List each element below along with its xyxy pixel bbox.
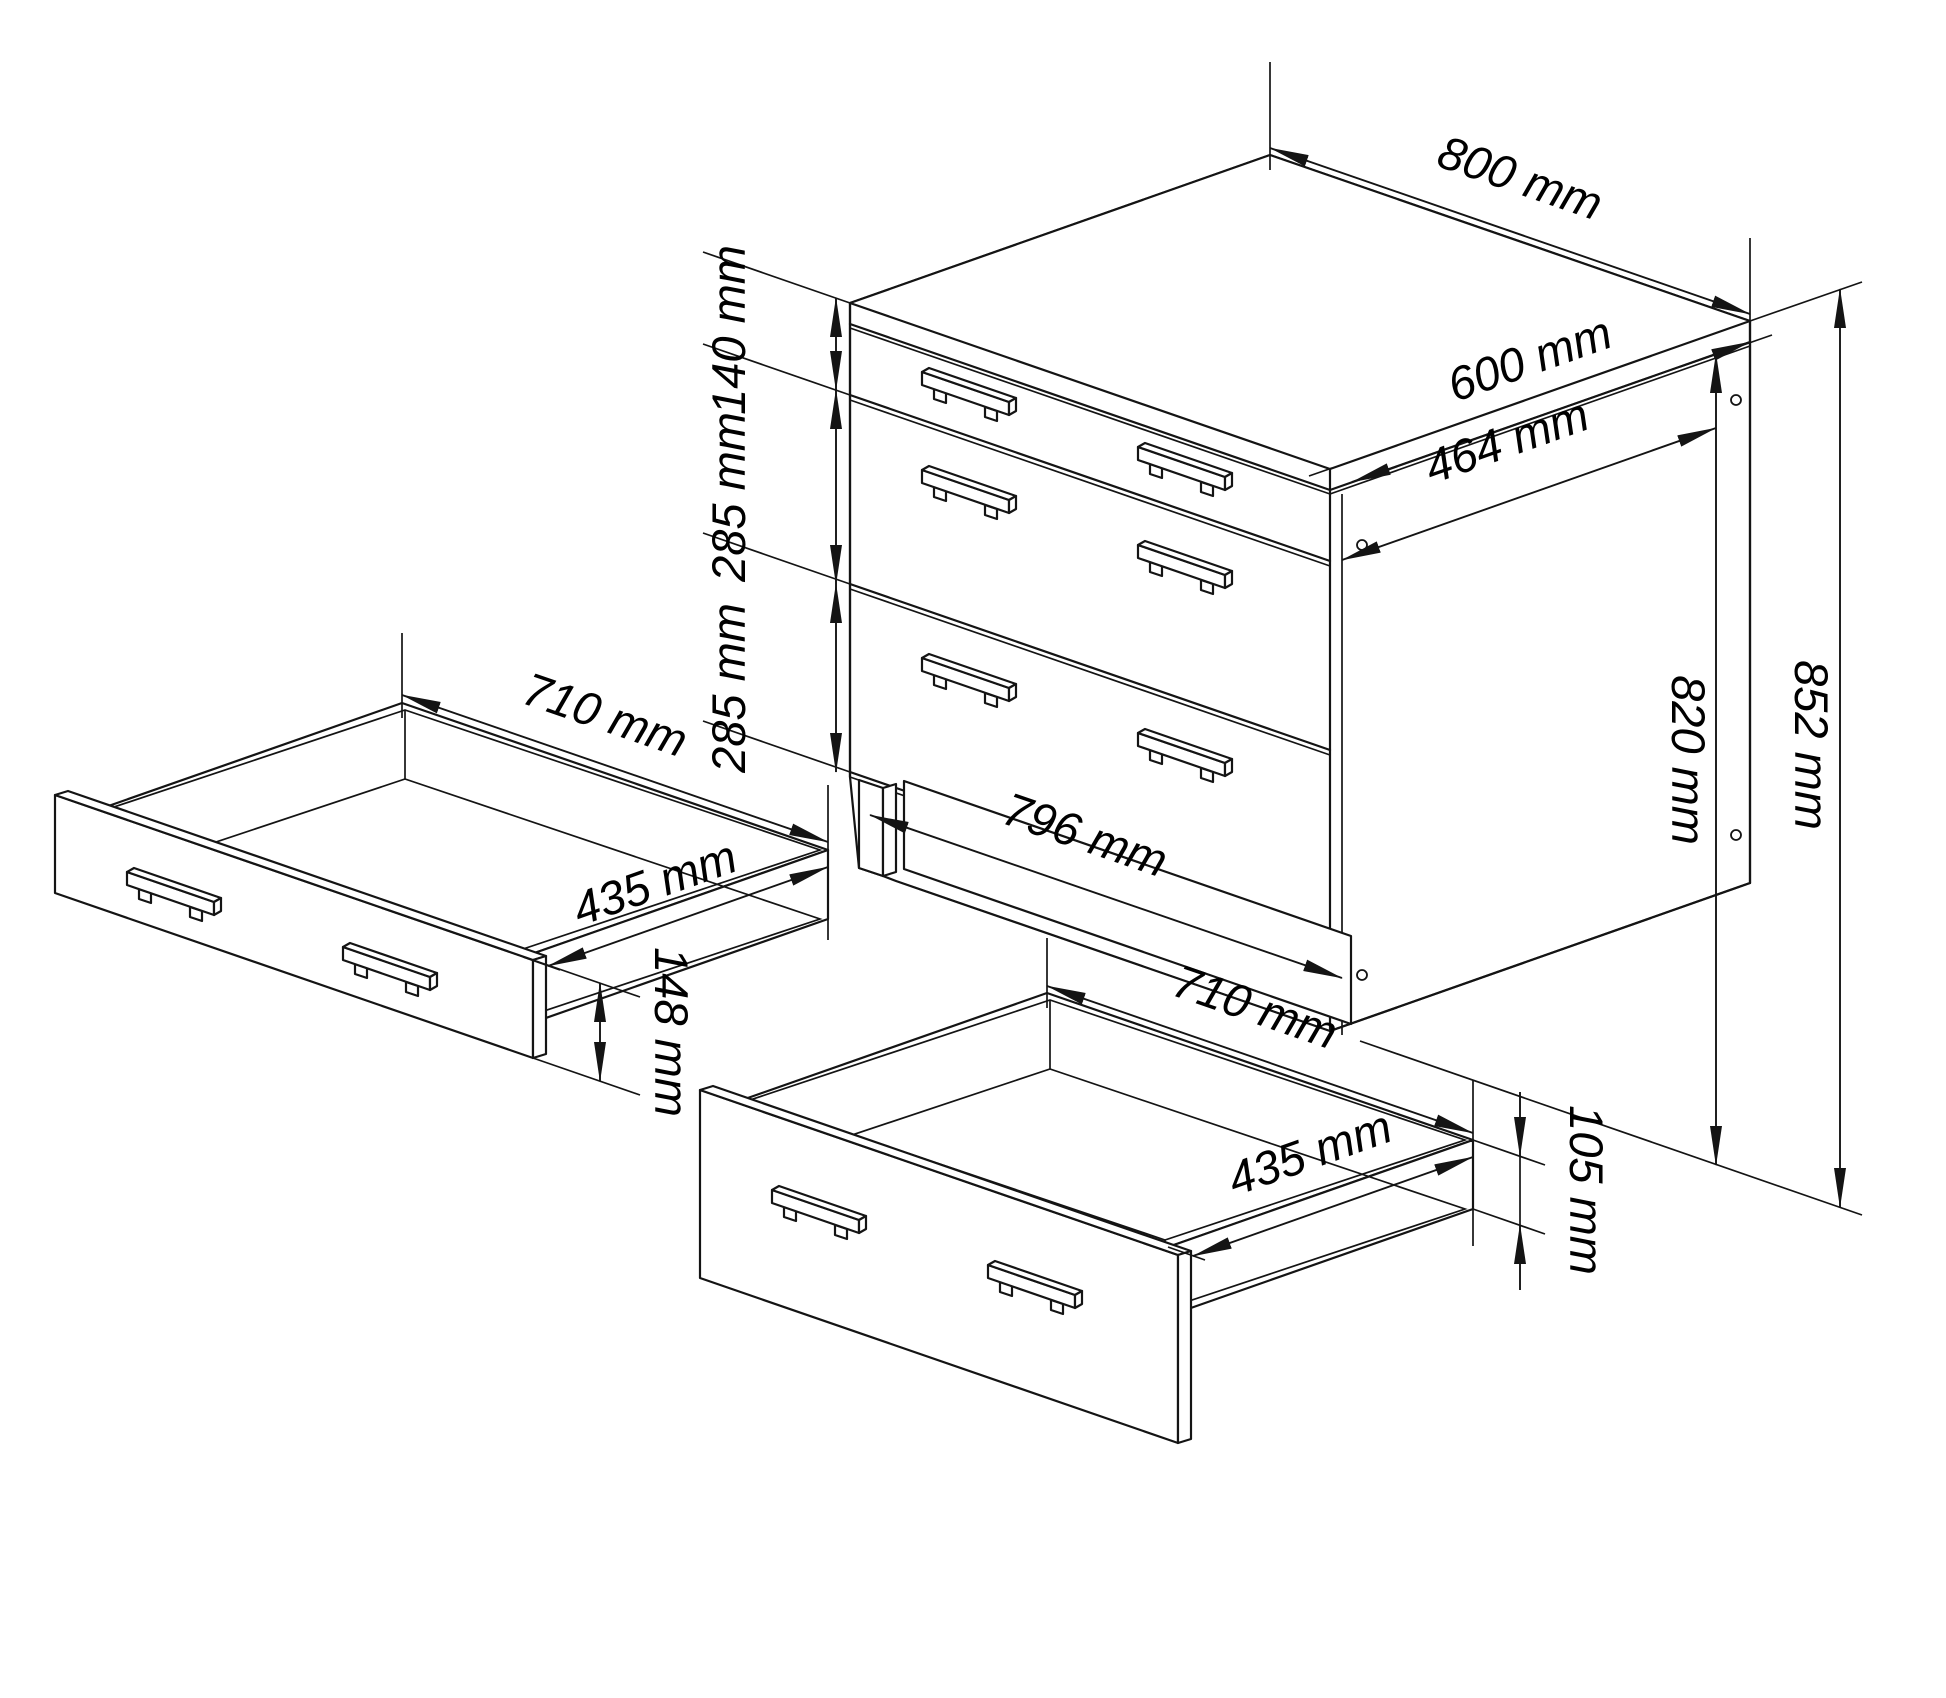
drawing-page: 800 mm 600 mm 464 mm 820 mm 852 mm 140 m…	[0, 0, 1946, 1698]
technical-drawing: 800 mm 600 mm 464 mm 820 mm 852 mm 140 m…	[0, 0, 1946, 1698]
dim-label-drawer3-height: 285 mm	[702, 603, 755, 774]
cabinet-drawing	[850, 155, 1750, 1035]
drawer-large-drawing: 710 mm 435 mm 105 mm	[700, 938, 1613, 1443]
screw-hole	[1357, 970, 1367, 980]
screw-hole	[1357, 540, 1367, 550]
dim-label-cabinet-total-height: 852 mm	[1785, 660, 1838, 830]
dim-label-drawer2-height: 285 mm	[702, 412, 755, 583]
screw-hole	[1731, 830, 1741, 840]
cabinet-leg	[859, 780, 883, 876]
cabinet-leg-side	[883, 784, 896, 876]
dim-label-cabinet-width: 800 mm	[1431, 125, 1609, 230]
dim-label-drawer-large-box-height: 105 mm	[1560, 1105, 1613, 1275]
dim-label-cabinet-carcass-height: 820 mm	[1662, 675, 1715, 845]
dim-label-drawer-small-front-height: 148 mm	[645, 947, 698, 1117]
screw-hole	[1731, 395, 1741, 405]
dim-label-drawer1-height: 140 mm	[702, 245, 755, 415]
